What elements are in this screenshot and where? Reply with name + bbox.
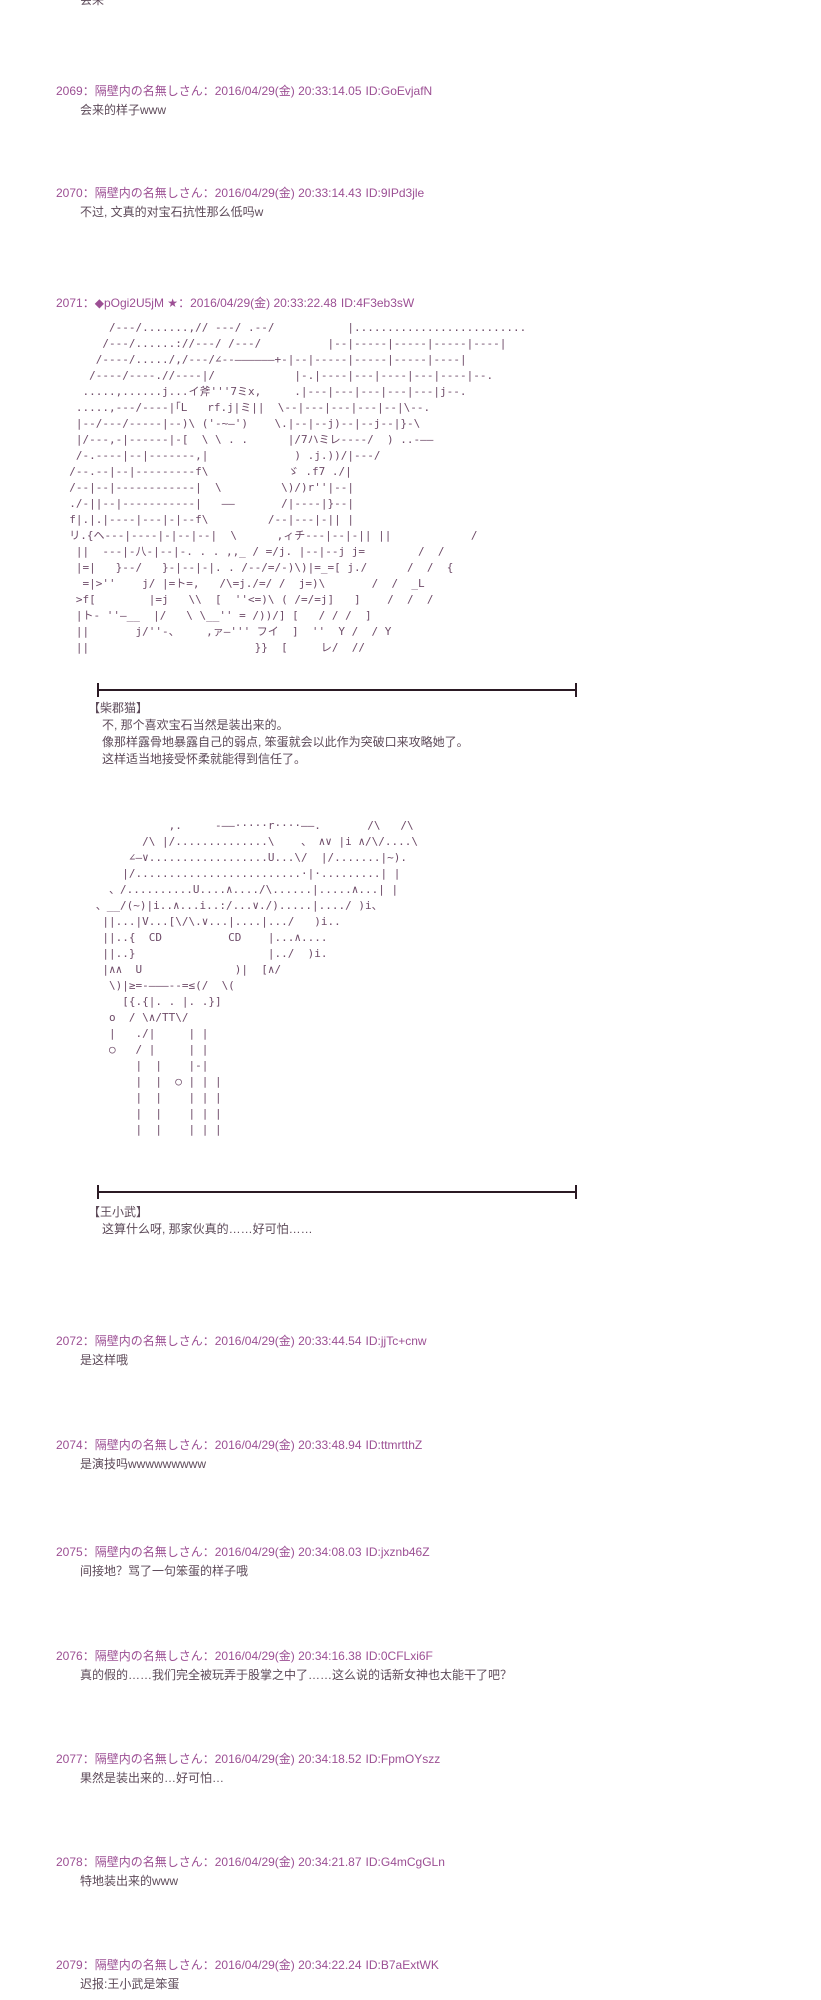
separator: ： [83,1649,95,1663]
divider-left-tick [97,683,99,697]
divider-right-tick [575,683,577,697]
post-number: 2070 [56,186,83,200]
post-id: ID:0CFLxi6F [366,1649,433,1663]
post-datetime: 2016/04/29(金) 20:33:14.43 [215,186,362,200]
speaker-label: 【柴郡猫】 [88,700,469,717]
separator: ： [203,1958,215,1972]
separator: ： [83,84,95,98]
divider-left-tick [97,1185,99,1199]
aa-ground-line [98,689,576,691]
thread-page: { "page": { "sep": "：", "bg": "#ffffff",… [0,0,821,2000]
post-header: 2076：隔壁内の名無しさん：2016/04/29(金) 20:34:16.38… [56,1649,512,1663]
post-datetime: 2016/04/29(金) 20:34:16.38 [215,1649,362,1663]
post-body-text: 真的假的……我们完全被玩弄于股掌之中了……这么说的话新女神也太能干了吧？ [80,1667,512,1684]
separator: ： [83,1855,95,1869]
post: 2079：隔壁内の名無しさん：2016/04/29(金) 20:34:22.24… [56,1958,439,1993]
ascii-art-wang-xiaowu: ,. -——·····r····——. /\ /\ /\ |/.........… [56,818,418,1138]
post: 2070：隔壁内の名無しさん：2016/04/29(金) 20:33:14.43… [56,186,424,221]
post-id: ID:jxznb46Z [366,1545,430,1559]
separator: ： [203,1855,215,1869]
post-id: ID:FpmOYszz [366,1752,441,1766]
post-header: 2069：隔壁内の名無しさん：2016/04/29(金) 20:33:14.05… [56,84,432,98]
post: 2069：隔壁内の名無しさん：2016/04/29(金) 20:33:14.05… [56,84,432,119]
post-id: ID:ttmrtthZ [366,1438,423,1452]
post-header: 2078：隔壁内の名無しさん：2016/04/29(金) 20:34:21.87… [56,1855,445,1869]
post-author: ◆pOgi2U5jM ★ [95,296,178,310]
dialogue-block: 【柴郡猫】 不, 那个喜欢宝石当然是装出来的。 像那样露骨地暴露自己的弱点, 笨… [88,700,469,768]
separator: ： [83,1334,95,1348]
post: 2076：隔壁内の名無しさん：2016/04/29(金) 20:34:16.38… [56,1649,512,1684]
post-datetime: 2016/04/29(金) 20:33:48.94 [215,1438,362,1452]
post-id: ID:GoEvjafN [366,84,433,98]
post-datetime: 2016/04/29(金) 20:34:18.52 [215,1752,362,1766]
post-number: 2078 [56,1855,83,1869]
post: 2078：隔壁内の名無しさん：2016/04/29(金) 20:34:21.87… [56,1855,445,1890]
post-author: 隔壁内の名無しさん [95,1958,203,1972]
post-header: 2072：隔壁内の名無しさん：2016/04/29(金) 20:33:44.54… [56,1334,427,1348]
separator: ： [203,186,215,200]
post-author: 隔壁内の名無しさん [95,1334,203,1348]
separator: ： [83,1438,95,1452]
thread-container: 会来 2071：◆pOgi2U5jM ★：2016/04/29(金) 20:33… [0,0,821,2000]
post-header: 2070：隔壁内の名無しさん：2016/04/29(金) 20:33:14.43… [56,186,424,200]
separator: ： [83,1545,95,1559]
post-header: 2079：隔壁内の名無しさん：2016/04/29(金) 20:34:22.24… [56,1958,439,1972]
post-author: 隔壁内の名無しさん [95,1438,203,1452]
post-datetime: 2016/04/29(金) 20:34:22.24 [215,1958,362,1972]
post-header: 2075：隔壁内の名無しさん：2016/04/29(金) 20:34:08.03… [56,1545,430,1559]
post-author: 隔壁内の名無しさん [95,1752,203,1766]
separator: ： [203,1545,215,1559]
post: 2075：隔壁内の名無しさん：2016/04/29(金) 20:34:08.03… [56,1545,430,1580]
dialogue-text: 不, 那个喜欢宝石当然是装出来的。 像那样露骨地暴露自己的弱点, 笨蛋就会以此作… [102,717,469,768]
post: 2072：隔壁内の名無しさん：2016/04/29(金) 20:33:44.54… [56,1334,427,1369]
post-number: 2077 [56,1752,83,1766]
post: 2077：隔壁内の名無しさん：2016/04/29(金) 20:34:18.52… [56,1752,440,1787]
post-id: ID:9IPd3jle [366,186,425,200]
separator: ： [83,1752,95,1766]
separator: ： [83,296,95,310]
post-datetime: 2016/04/29(金) 20:34:21.87 [215,1855,362,1869]
separator: ： [203,1334,215,1348]
post-author: 隔壁内の名無しさん [95,1855,203,1869]
post-number: 2075 [56,1545,83,1559]
post-number: 2072 [56,1334,83,1348]
post: 2074：隔壁内の名無しさん：2016/04/29(金) 20:33:48.94… [56,1438,422,1473]
post-number: 2074 [56,1438,83,1452]
post-id: ID:G4mCgGLn [366,1855,445,1869]
separator: ： [203,1649,215,1663]
post-datetime: 2016/04/29(金) 20:34:08.03 [215,1545,362,1559]
post-number: 2076 [56,1649,83,1663]
post-body-text: 会来的样子www [80,102,432,119]
post-datetime: 2016/04/29(金) 20:33:14.05 [215,84,362,98]
post-id: ID:4F3eb3sW [341,296,414,310]
separator: ： [203,1438,215,1452]
aa-ground-line [98,1191,576,1193]
post-header: 2077：隔壁内の名無しさん：2016/04/29(金) 20:34:18.52… [56,1752,440,1766]
post-number: 2079 [56,1958,83,1972]
post-header: 2071：◆pOgi2U5jM ★：2016/04/29(金) 20:33:22… [56,296,414,310]
divider-right-tick [575,1185,577,1199]
post-datetime: 2016/04/29(金) 20:33:44.54 [215,1334,362,1348]
post-body-text: 间接地？骂了一句笨蛋的样子哦 [80,1563,430,1580]
post-datetime: 2016/04/29(金) 20:33:22.48 [190,296,337,310]
post-number: 2071 [56,296,83,310]
post-id: ID:B7aExtWK [366,1958,439,1972]
post-header: 2074：隔壁内の名無しさん：2016/04/29(金) 20:33:48.94… [56,1438,422,1452]
post-body-text: 是这样哦 [80,1352,427,1369]
post-body-text: 是演技吗wwwwwwwww [80,1456,422,1473]
post-author: 隔壁内の名無しさん [95,1649,203,1663]
post-author: 隔壁内の名無しさん [95,1545,203,1559]
previous-post-tail: 会来 [80,0,104,7]
separator: ： [203,84,215,98]
post-body-text: 特地装出来的www [80,1873,445,1890]
post-author: 隔壁内の名無しさん [95,186,203,200]
post-author: 隔壁内の名無しさん [95,84,203,98]
separator: ： [83,1958,95,1972]
post-body-text: 不过, 文真的对宝石抗性那么低吗w [80,204,424,221]
ascii-art-cheshire-cat: /---/.......,// ---/ .--/ |.............… [56,320,526,656]
post-id: ID:jjTc+cnw [366,1334,427,1348]
post-number: 2069 [56,84,83,98]
post: 2071：◆pOgi2U5jM ★：2016/04/29(金) 20:33:22… [56,296,414,310]
post-body-text: 果然是装出来的…好可怕… [80,1770,440,1787]
post-body-text: 迟报:王小武是笨蛋 [80,1976,439,1993]
dialogue-text: 这算什么呀, 那家伙真的……好可怕…… [102,1221,313,1238]
separator: ： [83,186,95,200]
separator: ： [203,1752,215,1766]
dialogue-block: 【王小武】 这算什么呀, 那家伙真的……好可怕…… [88,1204,313,1238]
speaker-label: 【王小武】 [88,1204,313,1221]
separator: ： [178,296,190,310]
